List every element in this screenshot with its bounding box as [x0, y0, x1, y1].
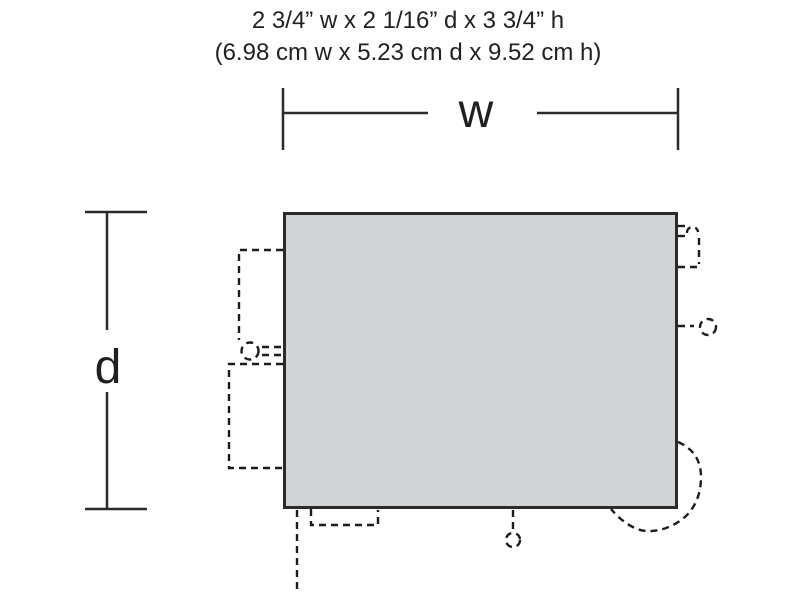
footprint-drawing [0, 0, 800, 601]
left-small-circle-detail [242, 343, 259, 360]
width-label: w [459, 88, 494, 136]
depth-label: d [95, 344, 122, 392]
bottom-detail-outlines [297, 509, 520, 594]
left-lower-detail-outline [229, 364, 283, 468]
right-top-hook-arc [687, 227, 698, 233]
left-detail-outlines [229, 250, 283, 468]
bottom-u-detail-outline [311, 509, 378, 525]
bottom-small-circle-detail [506, 533, 520, 547]
footprint-rect [285, 214, 677, 508]
footprint-diagram: 2 3/4” w x 2 1/16” d x 3 3/4” h (6.98 cm… [0, 0, 800, 601]
right-small-circle-detail [700, 319, 716, 335]
left-upper-detail-outline [239, 250, 283, 340]
